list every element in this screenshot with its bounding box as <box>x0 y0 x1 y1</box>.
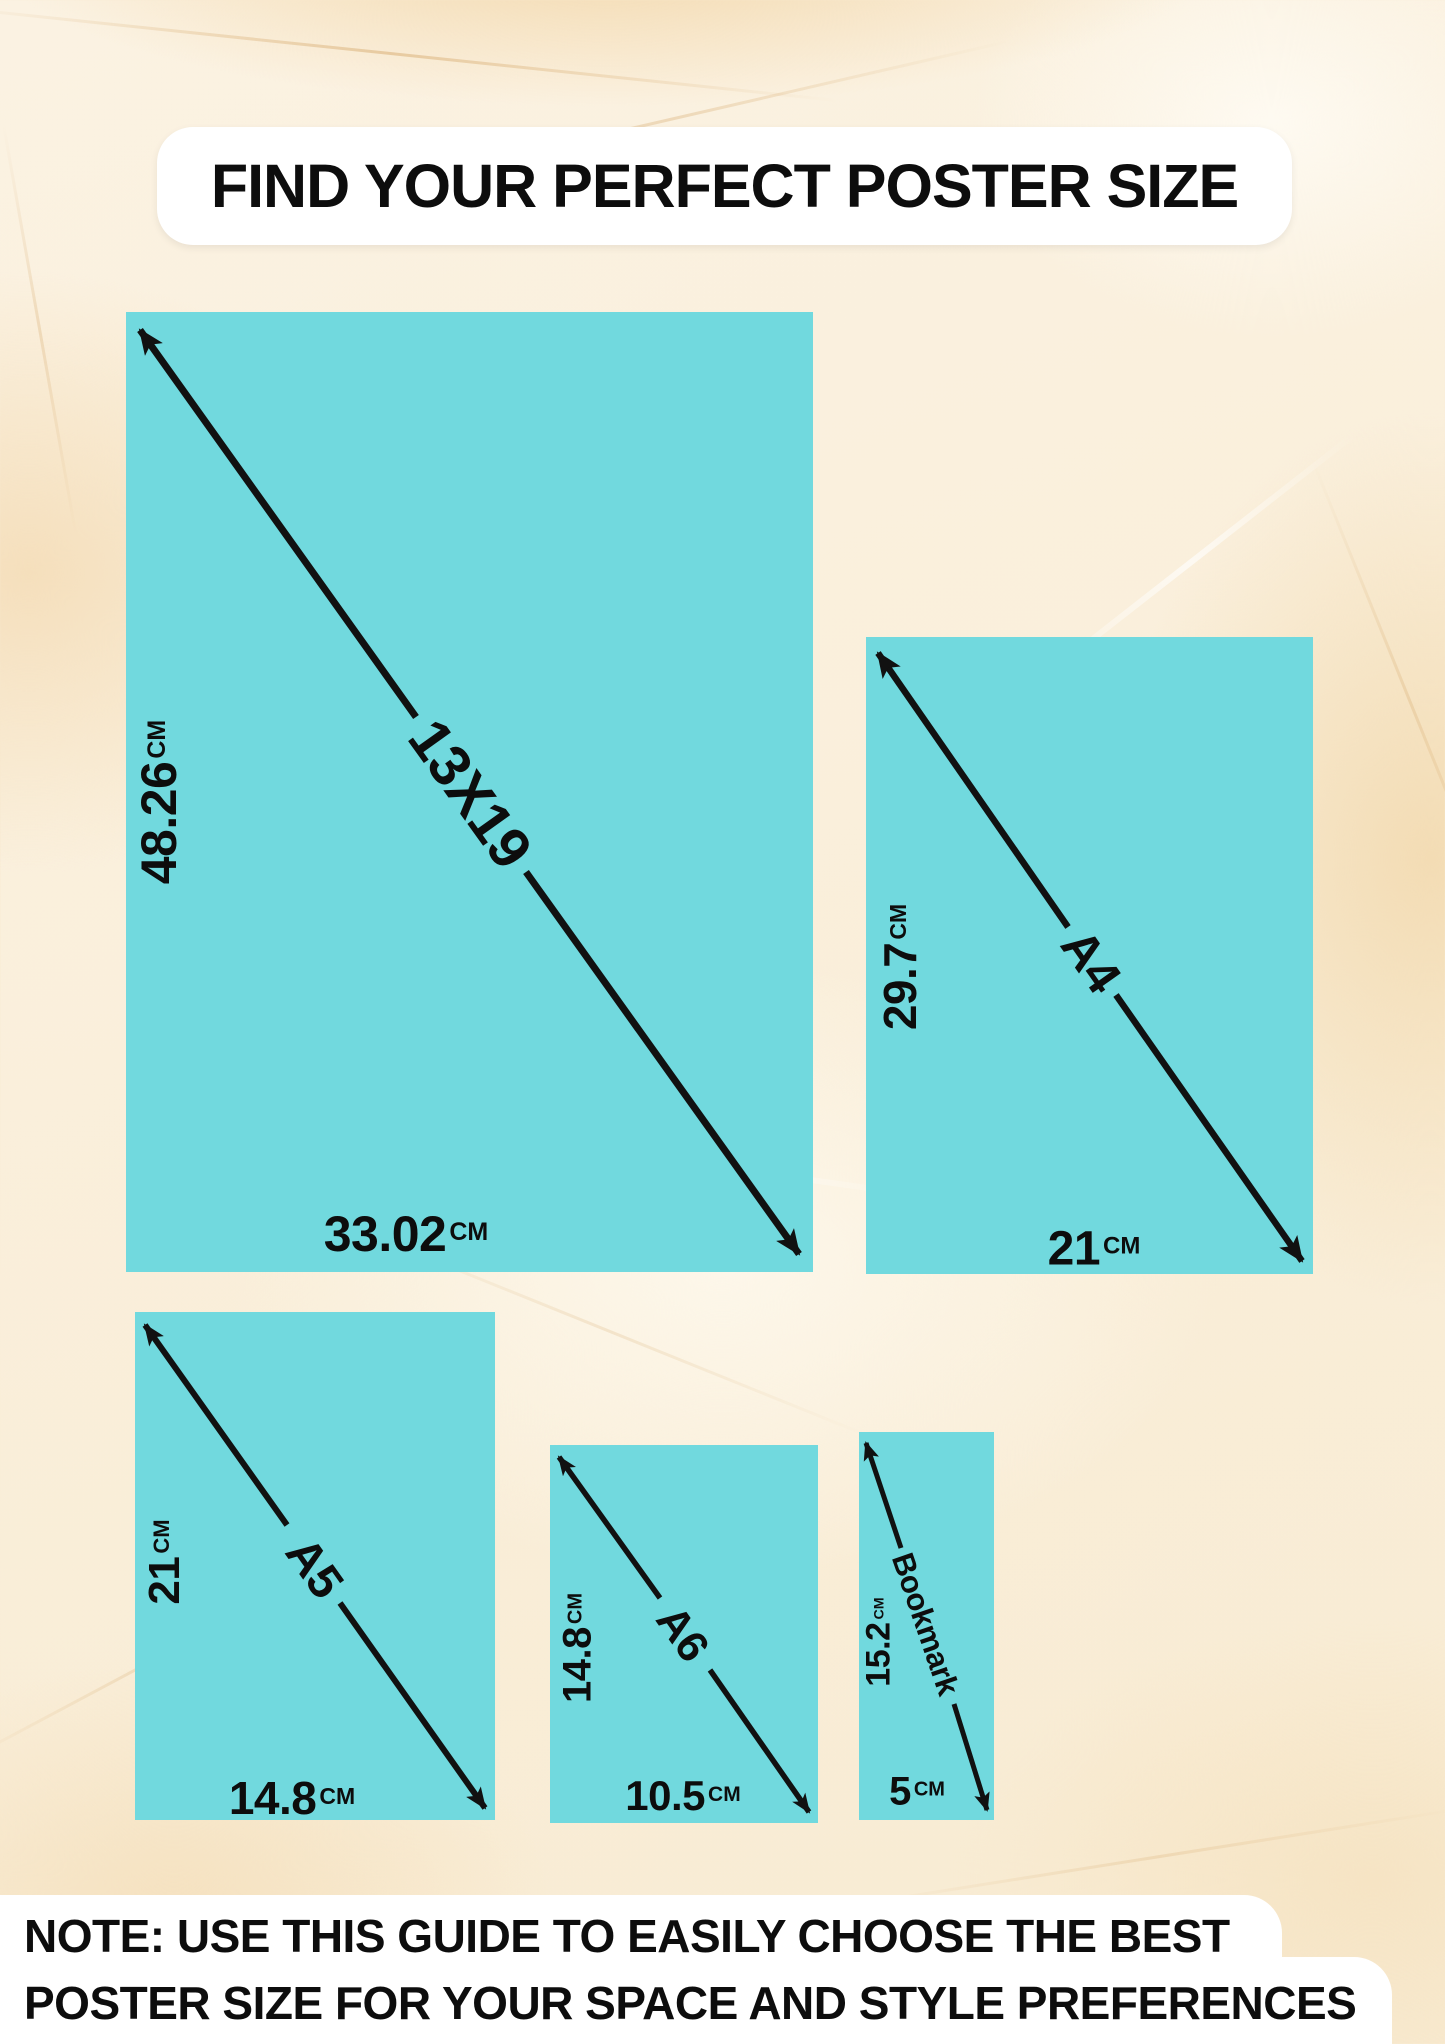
height-value: 15.2 <box>860 1623 898 1687</box>
note-line-2: POSTER SIZE FOR YOUR SPACE AND STYLE PRE… <box>24 1970 1356 2037</box>
width-unit: CM <box>319 1783 355 1809</box>
width-label: 5CM <box>889 1770 945 1815</box>
height-value: 14.8 <box>556 1627 600 1703</box>
poster-a6: 14.8CM A6 10.5CM <box>550 1445 818 1823</box>
width-label: 21CM <box>1048 1222 1141 1277</box>
marble-vein <box>1311 460 1445 943</box>
width-unit: CM <box>708 1783 741 1806</box>
height-label: 15.2CM <box>860 1597 899 1686</box>
width-unit: CM <box>1103 1233 1140 1260</box>
height-value: 21 <box>140 1557 189 1605</box>
note-line-1: NOTE: USE THIS GUIDE TO EASILY CHOOSE TH… <box>24 1903 1356 1970</box>
marble-vein <box>0 5 838 102</box>
width-label: 14.8CM <box>229 1771 355 1825</box>
height-unit: CM <box>149 1519 174 1553</box>
width-label: 10.5CM <box>625 1772 740 1820</box>
marble-vein <box>2 124 78 538</box>
height-value: 48.26 <box>131 762 187 885</box>
height-label: 29.7CM <box>873 904 927 1030</box>
width-label: 33.02CM <box>324 1205 489 1263</box>
height-label: 48.26CM <box>130 720 188 885</box>
width-unit: CM <box>914 1779 945 1801</box>
poster-13x19: 48.26CM 13X19 33.02CM <box>126 312 813 1272</box>
height-label: 21CM <box>140 1519 190 1604</box>
height-value: 29.7 <box>874 943 926 1031</box>
width-unit: CM <box>449 1218 488 1246</box>
marble-vein <box>854 1807 1445 1907</box>
height-unit: CM <box>885 904 911 940</box>
height-unit: CM <box>565 1593 587 1624</box>
page-title: FIND YOUR PERFECT POSTER SIZE <box>211 151 1238 221</box>
poster-a4: 29.7CM A4 21CM <box>866 637 1313 1274</box>
note-text: NOTE: USE THIS GUIDE TO EASILY CHOOSE TH… <box>24 1903 1356 2037</box>
height-unit: CM <box>871 1597 887 1619</box>
width-value: 14.8 <box>229 1772 317 1824</box>
width-value: 10.5 <box>625 1772 705 1819</box>
title-banner: FIND YOUR PERFECT POSTER SIZE <box>157 127 1292 245</box>
width-value: 5 <box>889 1770 911 1814</box>
poster-bookmark: 15.2CM Bookmark 5CM <box>859 1432 994 1820</box>
height-unit: CM <box>143 720 171 759</box>
width-value: 21 <box>1048 1223 1100 1276</box>
height-label: 14.8CM <box>556 1593 601 1703</box>
width-value: 33.02 <box>324 1206 447 1262</box>
poster-a5: 21CM A5 14.8CM <box>135 1312 495 1820</box>
